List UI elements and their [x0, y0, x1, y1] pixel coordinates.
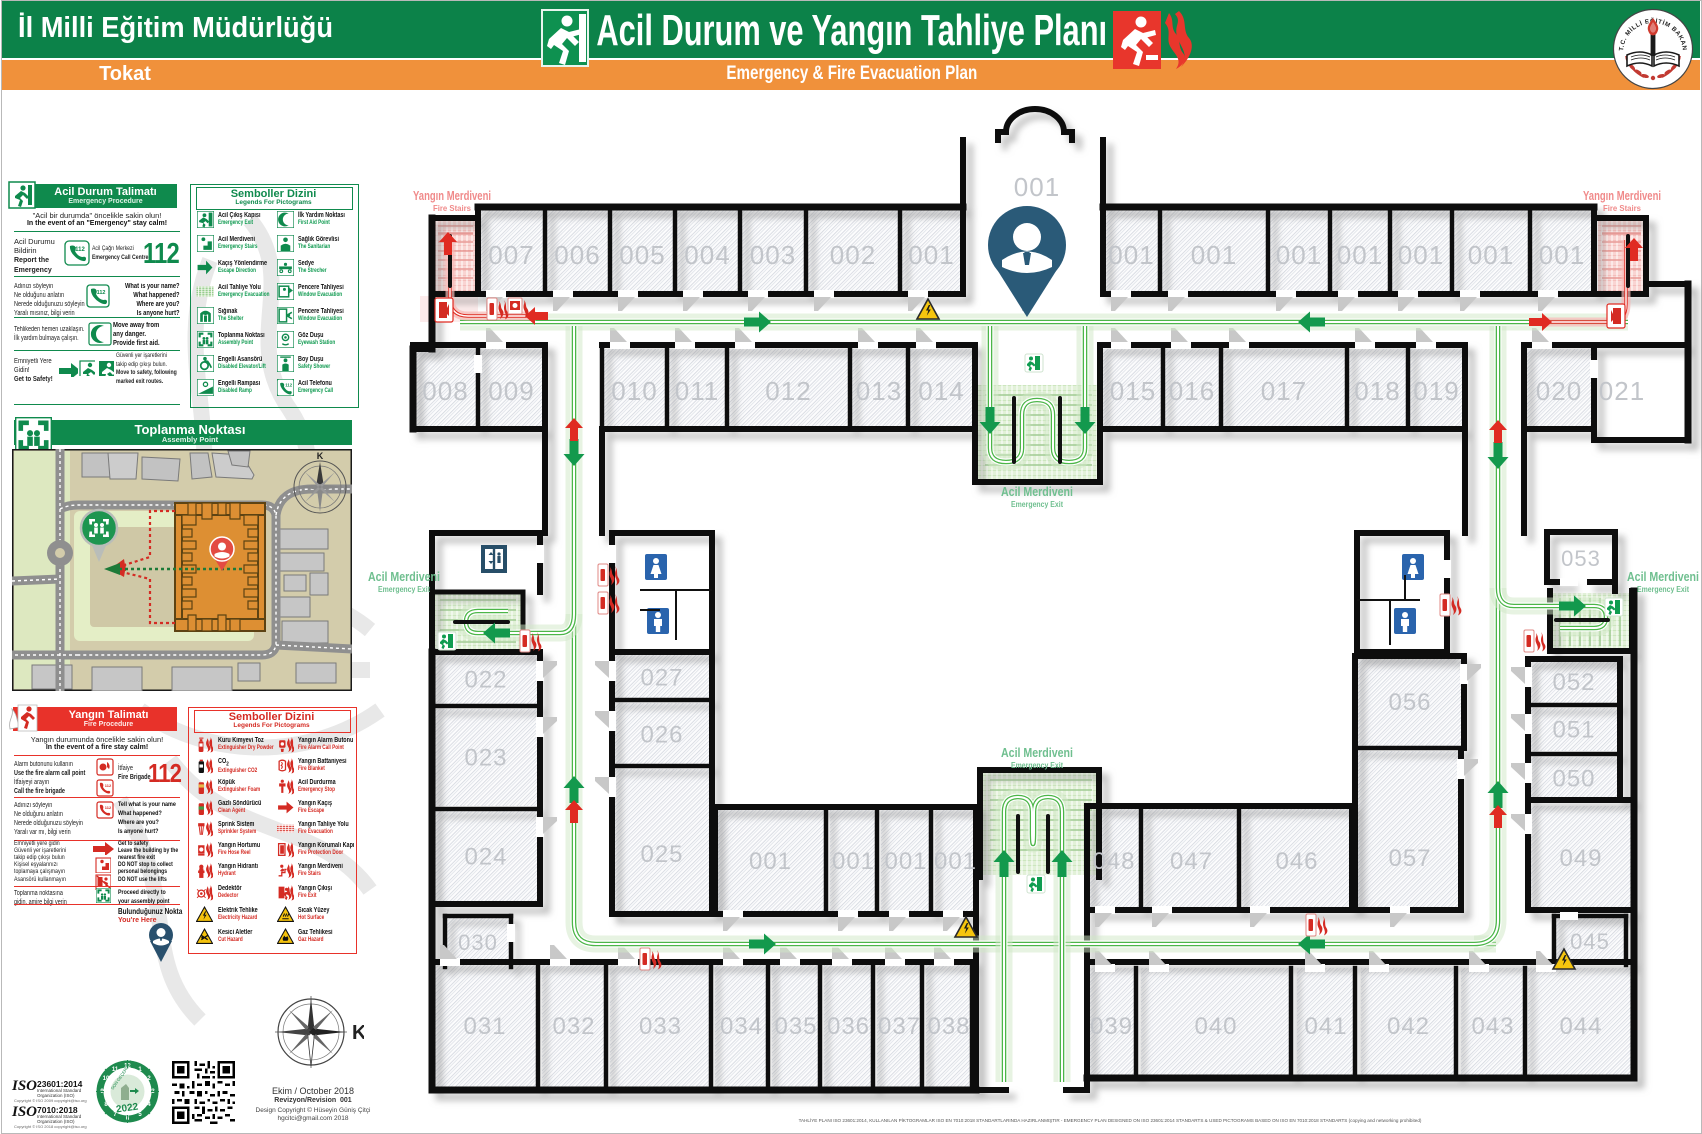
svg-text:011: 011: [675, 376, 719, 406]
svg-text:035: 035: [774, 1013, 817, 1040]
svg-text:040: 040: [1194, 1013, 1237, 1040]
svg-text:042: 042: [1387, 1013, 1430, 1040]
svg-text:001: 001: [1337, 240, 1383, 270]
svg-text:014: 014: [918, 376, 964, 406]
svg-text:005: 005: [619, 240, 665, 270]
svg-text:009: 009: [488, 376, 534, 406]
svg-text:013: 013: [856, 376, 902, 406]
svg-text:001: 001: [1398, 240, 1444, 270]
svg-text:043: 043: [1471, 1013, 1514, 1040]
svg-text:051: 051: [1552, 717, 1595, 744]
svg-text:039: 039: [1090, 1013, 1133, 1040]
svg-text:001: 001: [884, 848, 927, 875]
svg-text:007: 007: [488, 240, 534, 270]
svg-text:022: 022: [464, 667, 507, 694]
svg-text:001: 001: [934, 848, 977, 875]
svg-text:Yangın Merdiveni: Yangın Merdiveni: [413, 188, 491, 203]
svg-text:Acil Merdiveni: Acil Merdiveni: [368, 569, 440, 584]
svg-text:001: 001: [1468, 240, 1514, 270]
svg-text:053: 053: [1561, 546, 1601, 571]
svg-text:024: 024: [464, 844, 507, 871]
svg-text:008: 008: [422, 376, 468, 406]
svg-text:001: 001: [1191, 240, 1237, 270]
svg-text:Emergency Exit: Emergency Exit: [378, 584, 430, 594]
svg-text:Acil Merdiveni: Acil Merdiveni: [1001, 484, 1073, 499]
svg-text:Emergency Exit: Emergency Exit: [1011, 499, 1063, 509]
svg-text:049: 049: [1559, 845, 1602, 872]
svg-text:010: 010: [611, 376, 657, 406]
svg-text:056: 056: [1388, 689, 1431, 716]
svg-text:025: 025: [640, 841, 683, 868]
svg-text:050: 050: [1552, 766, 1595, 793]
svg-text:038: 038: [927, 1013, 970, 1040]
svg-text:001: 001: [832, 848, 875, 875]
svg-text:001: 001: [1014, 172, 1060, 202]
svg-text:027: 027: [640, 665, 683, 692]
svg-text:012: 012: [765, 376, 811, 406]
svg-text:006: 006: [554, 240, 600, 270]
svg-text:026: 026: [640, 722, 683, 749]
svg-text:046: 046: [1275, 848, 1318, 875]
svg-text:003: 003: [750, 240, 796, 270]
svg-text:015: 015: [1110, 376, 1156, 406]
svg-text:Fire Stairs: Fire Stairs: [433, 203, 471, 213]
svg-text:037: 037: [878, 1013, 921, 1040]
svg-text:001: 001: [1276, 240, 1322, 270]
svg-text:001: 001: [1108, 240, 1154, 270]
svg-text:Acil Merdiveni: Acil Merdiveni: [1627, 569, 1699, 584]
svg-text:047: 047: [1170, 848, 1213, 875]
svg-text:016: 016: [1169, 376, 1215, 406]
svg-text:001: 001: [1539, 240, 1585, 270]
svg-text:030: 030: [458, 930, 498, 955]
svg-text:048: 048: [1092, 848, 1135, 875]
svg-text:002: 002: [830, 240, 876, 270]
svg-text:Emergency Exit: Emergency Exit: [1637, 584, 1689, 594]
svg-text:036: 036: [827, 1013, 870, 1040]
svg-text:034: 034: [720, 1013, 763, 1040]
svg-text:057: 057: [1388, 845, 1431, 872]
svg-text:045: 045: [1570, 929, 1610, 954]
svg-text:Yangın Merdiveni: Yangın Merdiveni: [1583, 188, 1661, 203]
svg-text:044: 044: [1559, 1013, 1602, 1040]
svg-text:001: 001: [908, 240, 954, 270]
svg-text:017: 017: [1261, 376, 1307, 406]
svg-text:Emergency Exit: Emergency Exit: [1011, 760, 1063, 770]
svg-text:052: 052: [1552, 669, 1595, 696]
svg-text:Acil Merdiveni: Acil Merdiveni: [1001, 745, 1073, 760]
svg-text:033: 033: [639, 1013, 682, 1040]
svg-text:Fire Stairs: Fire Stairs: [1603, 203, 1641, 213]
svg-text:004: 004: [684, 240, 730, 270]
svg-text:001: 001: [749, 848, 792, 875]
svg-text:019: 019: [1413, 376, 1459, 406]
svg-text:041: 041: [1304, 1013, 1347, 1040]
svg-text:018: 018: [1354, 376, 1400, 406]
svg-text:021: 021: [1599, 376, 1645, 406]
svg-text:031: 031: [463, 1013, 506, 1040]
svg-text:020: 020: [1536, 376, 1582, 406]
svg-text:023: 023: [464, 745, 507, 772]
svg-text:032: 032: [552, 1013, 595, 1040]
